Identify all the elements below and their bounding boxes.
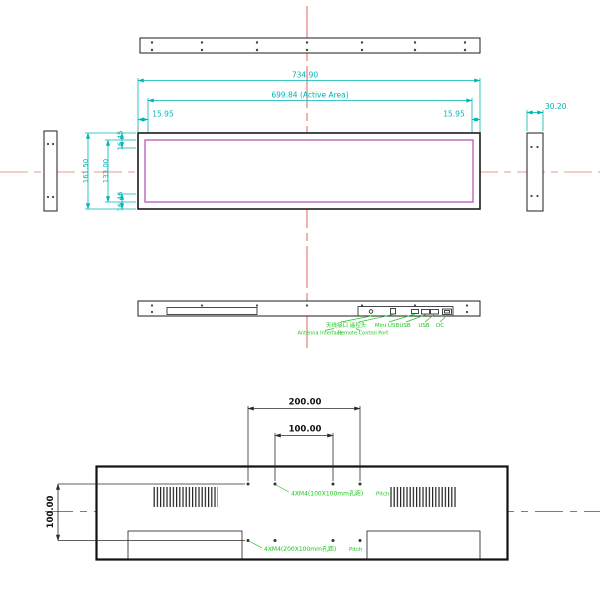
dim-overall-width: 734.90: [292, 71, 318, 80]
antenna-label-en: Antenna Interface: [297, 331, 342, 337]
vesa-hole: [247, 483, 250, 486]
vesa-200-callout: 4XM4(200X100mm孔距): [264, 545, 336, 553]
hole: [52, 196, 54, 198]
hole: [306, 41, 308, 43]
dc-label: DC: [436, 323, 444, 329]
hole: [414, 41, 416, 43]
left-side-outline: [44, 131, 57, 211]
vesa-hole: [359, 483, 362, 486]
right-side-outline: [527, 133, 543, 211]
right-side-view: 30.20: [527, 102, 567, 211]
hole: [306, 49, 308, 51]
height-dimensions: 161.50 133.00 16.45 16.46: [82, 130, 136, 211]
hole: [414, 49, 416, 51]
hole: [256, 41, 258, 43]
hole: [530, 146, 532, 148]
vesa-100-callout: 4XM4(100X100mm孔距): [291, 490, 363, 498]
leader-line: [341, 316, 371, 322]
front-view: [138, 133, 480, 209]
dim-bezel-right: 15.95: [443, 110, 465, 119]
hole: [306, 304, 308, 306]
port-labels: 天线接口 遥控头 Mini USB USB USB DC Antenna Int…: [297, 321, 444, 337]
hole: [256, 304, 258, 306]
vesa-100-pitch: Pitch: [376, 492, 390, 498]
antenna-label-cn: 天线接口: [326, 321, 348, 329]
hole: [256, 49, 258, 51]
hole: [52, 143, 54, 145]
hole: [464, 41, 466, 43]
front-view-outline: [138, 133, 480, 209]
vesa-hole: [359, 539, 362, 542]
hole: [361, 41, 363, 43]
vent-grille-right: [390, 487, 457, 507]
hole: [536, 195, 538, 197]
hole: [201, 49, 203, 51]
width-dimensions: 734.90 699.84 (Active Area) 15.95 15.95: [138, 71, 480, 141]
hole: [201, 41, 203, 43]
dim-bezel-top: 16.45: [117, 130, 125, 150]
hole: [530, 195, 532, 197]
dim-overall-height: 161.50: [82, 159, 90, 184]
top-view-outline: [140, 38, 480, 53]
dim-active-width: 699.84 (Active Area): [271, 91, 348, 100]
hole: [151, 41, 153, 43]
hole: [536, 146, 538, 148]
vesa-hole: [332, 539, 335, 542]
hole: [151, 311, 153, 313]
dim-vesa-v100: 100.00: [46, 496, 56, 529]
remote-label-en: Remote Control Port: [338, 331, 388, 337]
dim-bezel-bottom: 16.46: [117, 191, 125, 212]
dim-depth: 30.20: [545, 102, 567, 111]
rear-vesa-view: 200.00 100.00 100.00 4XM4(100X100mm孔距) P…: [46, 398, 508, 560]
hole: [466, 304, 468, 306]
hole: [414, 304, 416, 306]
dim-vesa-200: 200.00: [289, 398, 322, 408]
vesa-hole: [247, 539, 250, 542]
dim-vesa-100: 100.00: [289, 425, 322, 435]
technical-drawing: 734.90 699.84 (Active Area) 15.95 15.95 …: [0, 0, 600, 600]
vesa-hole: [274, 539, 277, 542]
hole: [361, 49, 363, 51]
hole: [361, 304, 363, 306]
hole: [47, 143, 49, 145]
drawing-canvas: 734.90 699.84 (Active Area) 15.95 15.95 …: [0, 0, 600, 600]
usb-label-2: USB: [418, 323, 430, 329]
vent-grille-left: [152, 487, 218, 507]
hole: [151, 49, 153, 51]
hole: [466, 311, 468, 313]
hole: [151, 304, 153, 306]
mini-usb-label: Mini USB: [375, 323, 400, 329]
left-side-view: [44, 131, 57, 211]
remote-label-cn: 遥控头: [350, 321, 367, 329]
hole: [47, 196, 49, 198]
bottom-ports-view: 天线接口 遥控头 Mini USB USB USB DC Antenna Int…: [138, 301, 480, 337]
vesa-hole: [332, 483, 335, 486]
hole: [464, 49, 466, 51]
vesa-200-pitch: Pitch: [349, 547, 363, 553]
top-view: [140, 38, 480, 53]
dim-inner-height: 133.00: [102, 159, 110, 184]
hole: [201, 304, 203, 306]
dim-bezel-left: 15.95: [152, 110, 174, 119]
usb-label-1: USB: [399, 323, 411, 329]
